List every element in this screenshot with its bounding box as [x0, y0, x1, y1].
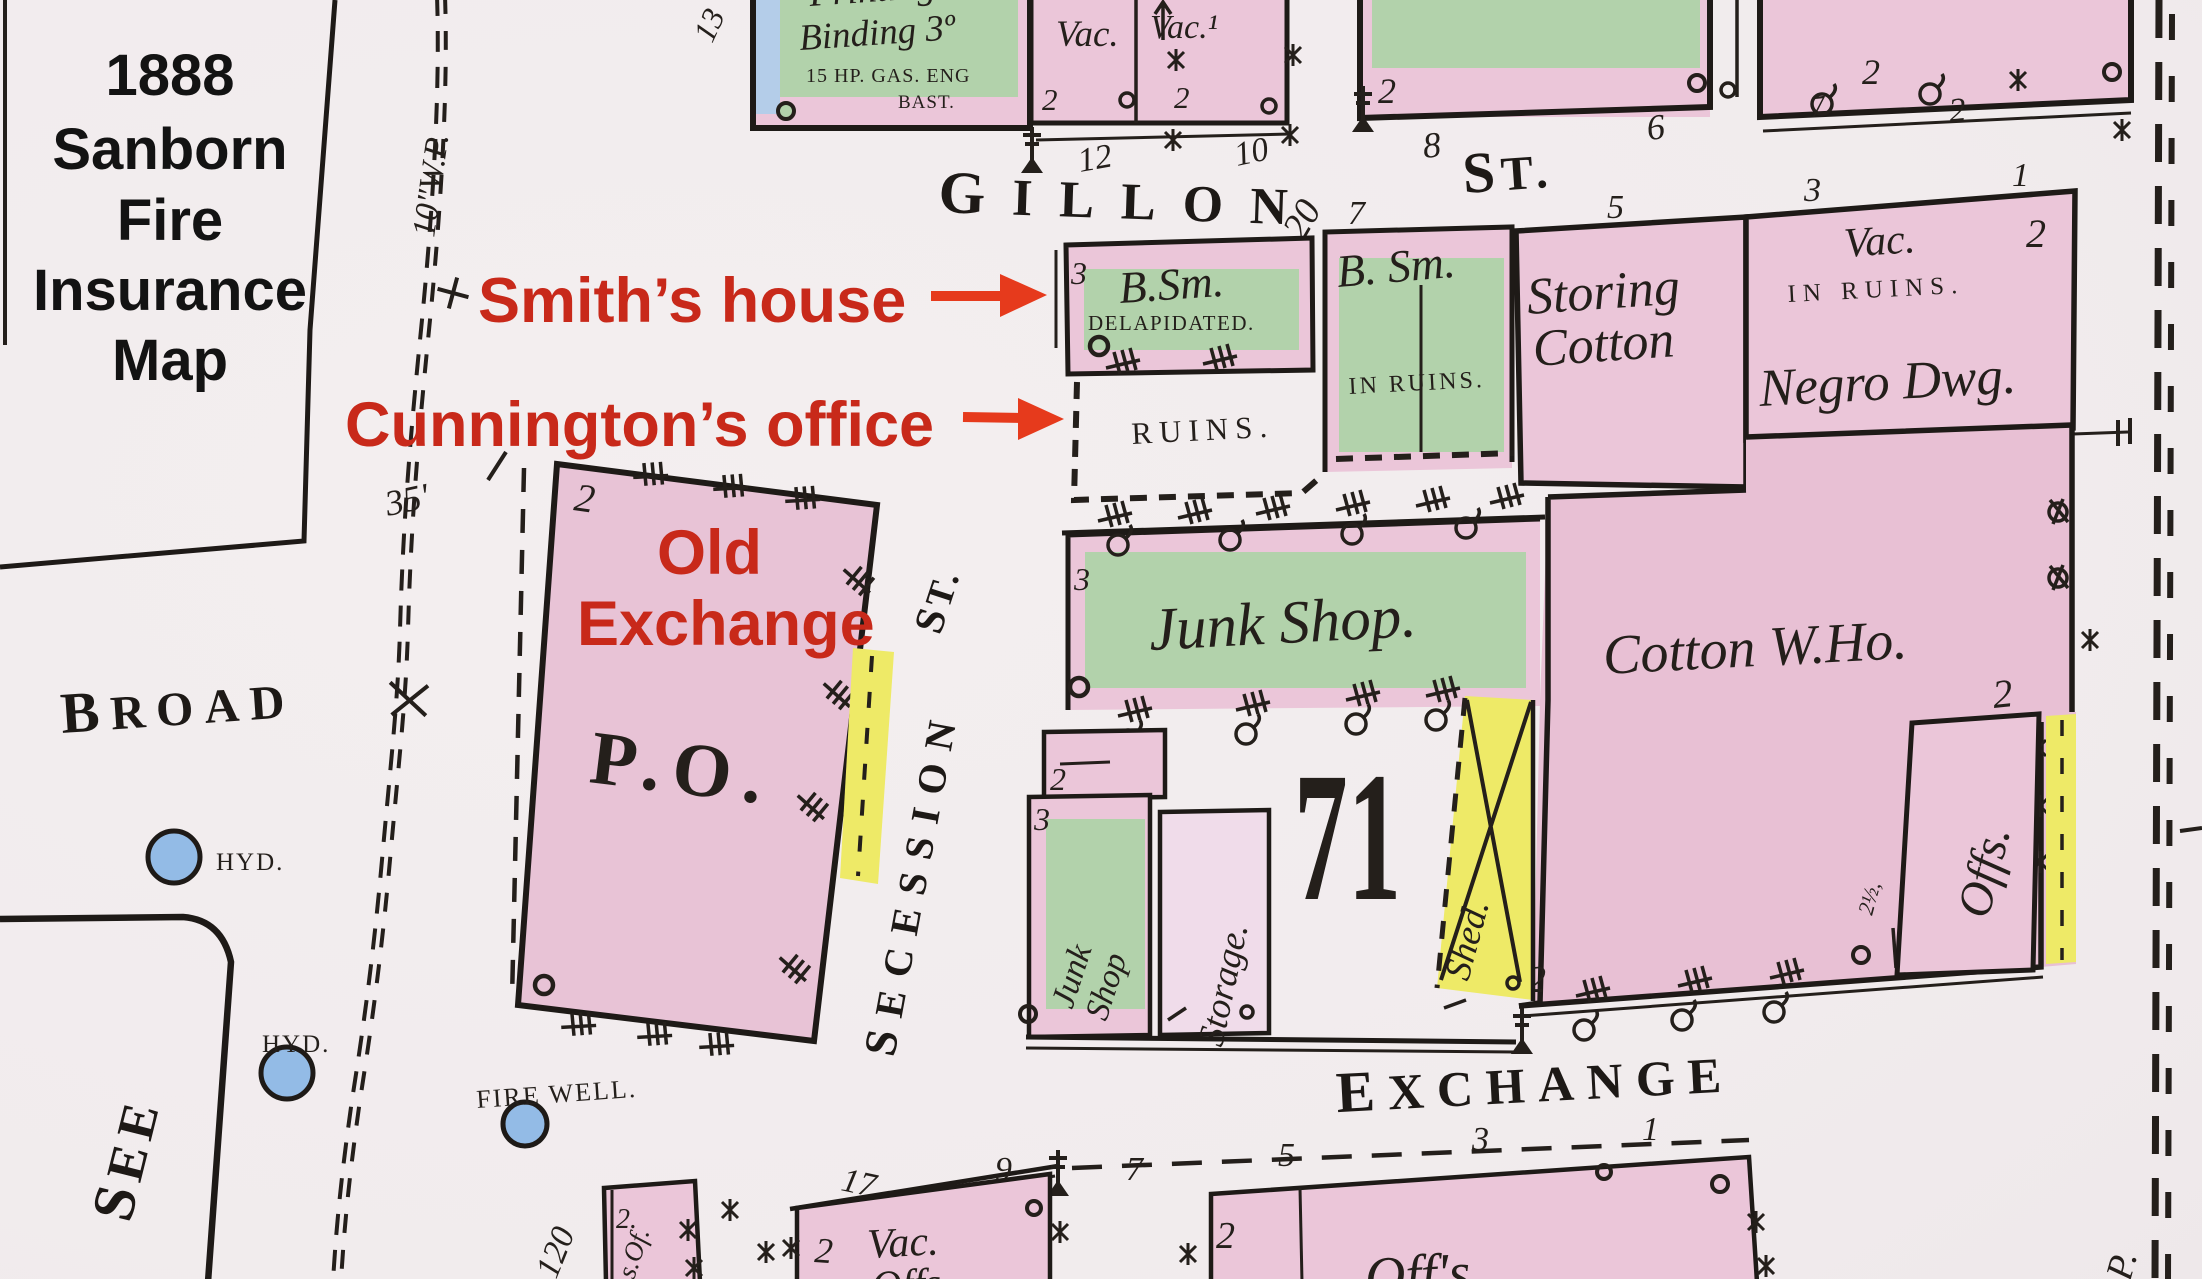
svg-text:5: 5: [1607, 189, 1624, 226]
svg-text:3: 3: [1070, 255, 1087, 291]
svg-text:BAST.: BAST.: [898, 92, 955, 113]
svg-text:Fire: Fire: [117, 188, 223, 253]
svg-text:3: 3: [1033, 801, 1050, 837]
svg-text:2: 2: [1174, 80, 1190, 115]
svg-text:71: 71: [1294, 734, 1401, 940]
svg-text:2: 2: [1050, 761, 1066, 797]
svg-text:3: 3: [1803, 172, 1821, 209]
svg-text:Cotton: Cotton: [1531, 311, 1676, 378]
svg-text:2: 2: [1862, 52, 1880, 92]
svg-text:Smith’s house: Smith’s house: [478, 266, 906, 336]
svg-text:Sanborn: Sanborn: [52, 117, 287, 182]
svg-text:HYD.: HYD.: [216, 849, 284, 876]
svg-text:7: 7: [1348, 195, 1367, 232]
svg-text:DELAPIDATED.: DELAPIDATED.: [1088, 311, 1255, 335]
svg-text:Off's.: Off's.: [1363, 1241, 1485, 1279]
svg-text:Vac.: Vac.: [1056, 14, 1119, 55]
svg-text:15 HP. GAS. ENG: 15 HP. GAS. ENG: [806, 65, 970, 87]
svg-text:3: 3: [1471, 1121, 1489, 1158]
svg-text:Offs.: Offs.: [870, 1260, 953, 1279]
svg-text:2: 2: [1378, 71, 1396, 111]
svg-text:B. Sm.: B. Sm.: [1334, 236, 1457, 297]
svg-text:Old: Old: [657, 518, 762, 588]
svg-text:Vac.¹: Vac.¹: [1150, 9, 1218, 46]
svg-text:RUINS.: RUINS.: [1131, 409, 1275, 451]
svg-text:2: 2: [2026, 211, 2046, 256]
svg-text:1888: 1888: [105, 43, 234, 108]
svg-text:Map: Map: [112, 328, 228, 393]
svg-text:2: 2: [813, 1230, 834, 1271]
svg-text:2: 2: [1216, 1215, 1235, 1257]
svg-text:Cunnington’s office: Cunnington’s office: [345, 390, 934, 460]
svg-text:Insurance: Insurance: [33, 258, 307, 323]
svg-text:Junk Shop.: Junk Shop.: [1147, 583, 1418, 664]
svg-text:1: 1: [2012, 157, 2029, 194]
svg-text:HYD.: HYD.: [262, 1031, 330, 1058]
svg-text:Exchange: Exchange: [577, 589, 875, 659]
svg-text:7: 7: [1126, 1151, 1145, 1188]
svg-text:Vac.: Vac.: [1842, 216, 1916, 267]
svg-text:2: 2: [1042, 82, 1058, 117]
svg-text:1: 1: [1642, 1111, 1659, 1148]
svg-text:5: 5: [1278, 1137, 1295, 1174]
svg-text:3: 3: [1073, 561, 1090, 597]
svg-text:B.Sm.: B.Sm.: [1117, 256, 1225, 313]
